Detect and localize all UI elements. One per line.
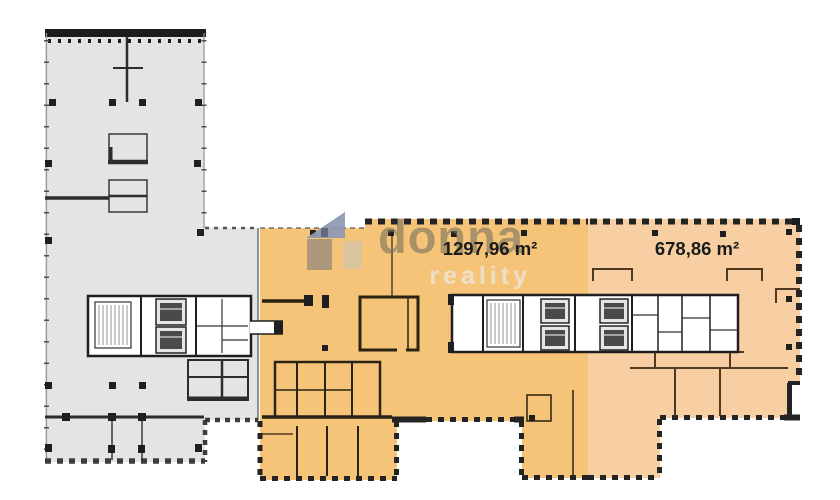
floor-plan-canvas: donna reality 1297,96 m² 678,86 m²: [0, 0, 840, 500]
watermark-sub-text: reality: [429, 262, 531, 290]
floor-plan-page: donna reality 1297,96 m² 678,86 m²: [0, 0, 840, 500]
central-core: [448, 294, 738, 353]
facade-wall: [45, 29, 206, 37]
area-label-unit-large: 1297,96 m²: [443, 238, 538, 259]
corridor-connector: [250, 321, 283, 334]
left-wing-core: [88, 296, 251, 356]
area-label-unit-small: 678,86 m²: [655, 238, 739, 259]
